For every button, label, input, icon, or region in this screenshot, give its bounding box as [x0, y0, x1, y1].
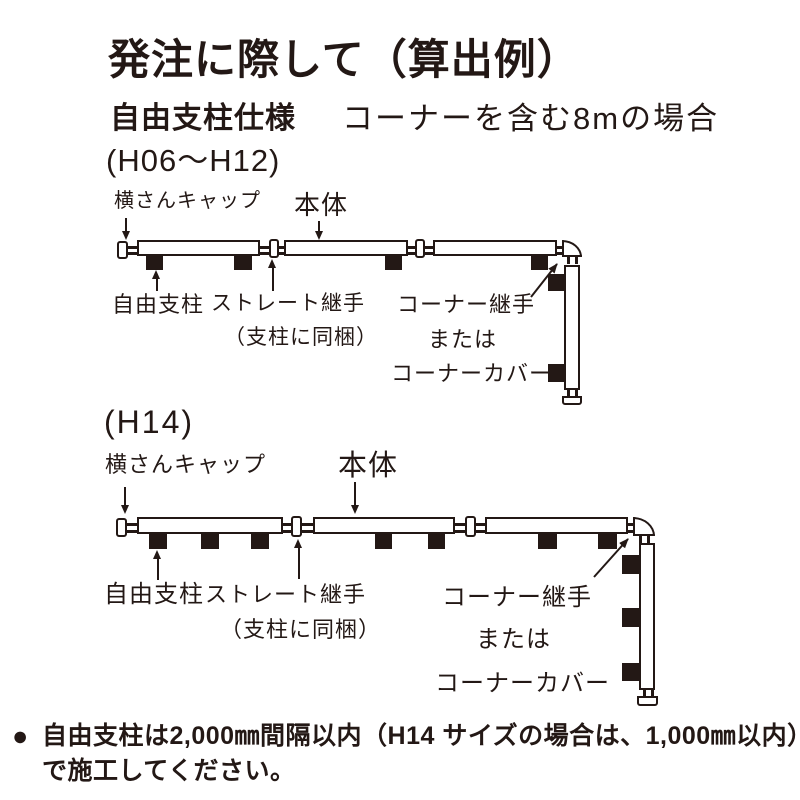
corner-label-line3: コーナーカバー: [391, 361, 552, 386]
joint-prong: [260, 252, 269, 255]
corner-label-line3: コーナーカバー: [435, 670, 610, 698]
bottom-rail-cap: [637, 696, 658, 706]
footnote-line2: で施工してください。: [42, 757, 296, 786]
free-post: [622, 555, 639, 574]
free-post: [234, 256, 252, 270]
free-post: [146, 256, 163, 270]
joint-prong: [408, 252, 415, 255]
arrow-to-cap-head: [122, 231, 130, 240]
cap-prong: [127, 530, 137, 533]
joint-prong: [425, 252, 433, 255]
corner-label-line2: または: [428, 327, 497, 352]
rail-end-cap: [116, 518, 127, 537]
vertical-rail: [564, 265, 580, 390]
spec-type-label: 自由支柱仕様: [110, 102, 296, 137]
footnote-line1: 自由支柱は2,000㎜間隔以内（H14 サイズの場合は、1,000㎜以内）: [42, 722, 800, 751]
joint-note-label: （支柱に同梱）: [224, 326, 378, 350]
joint-prong: [455, 523, 465, 526]
corner-joint: [633, 517, 655, 536]
joint-prong: [283, 523, 291, 526]
body-label: 本体: [294, 191, 348, 221]
free-post: [428, 534, 445, 549]
corner-joint: [562, 240, 582, 257]
fence-rail: [485, 517, 628, 534]
product-instruction-image: 発注に際して（算出例） 自由支柱仕様 コーナーを含む8mの場合 (H06〜H12…: [0, 0, 800, 800]
free-post: [385, 256, 402, 270]
straight-joint: [291, 516, 302, 537]
bottom-rail-cap: [562, 396, 582, 405]
corner-prong: [639, 536, 642, 543]
cap-prong: [127, 523, 137, 526]
free-post: [622, 663, 639, 681]
joint-prong: [476, 523, 485, 526]
arrow-to-joint: [272, 267, 274, 291]
straight-joint: [415, 239, 425, 258]
joint-note-label: （支柱に同梱）: [220, 617, 381, 642]
post-label: 自由支柱: [112, 292, 204, 317]
joint-label: ストレート継手: [205, 582, 366, 607]
post-label: 自由支柱: [104, 581, 204, 609]
size-range-label: (H06〜H12): [106, 143, 280, 179]
corner-prong: [647, 536, 650, 543]
free-post: [548, 364, 564, 382]
arrow-to-joint: [298, 547, 300, 579]
arrow-to-body: [354, 482, 356, 506]
vertical-rail: [639, 543, 655, 690]
joint-label: ストレート継手: [211, 292, 365, 316]
free-post: [251, 534, 269, 549]
size-range-label: (H14): [104, 404, 194, 441]
spec-case-label: コーナーを含む8mの場合: [342, 101, 719, 137]
joint-prong: [283, 530, 291, 533]
corner-prong: [567, 257, 570, 264]
cap-prong: [128, 252, 137, 255]
free-post: [375, 534, 392, 549]
joint-prong: [455, 530, 465, 533]
arrow-to-body-head: [351, 505, 359, 514]
corner-prong: [575, 257, 578, 264]
cap-prong: [128, 246, 137, 249]
fence-rail: [137, 240, 260, 256]
fence-rail: [313, 517, 455, 534]
arrow-to-body-head: [315, 231, 323, 240]
arrow-to-cap: [125, 218, 127, 232]
fence-rail: [284, 240, 408, 256]
page-title: 発注に際して（算出例）: [108, 36, 580, 84]
body-label: 本体: [338, 450, 398, 483]
joint-prong: [302, 530, 313, 533]
joint-prong: [476, 530, 485, 533]
straight-joint: [269, 239, 279, 258]
joint-prong: [302, 523, 313, 526]
fence-rail: [137, 517, 283, 534]
cap-label: 横さんキャップ: [105, 452, 266, 477]
free-post: [622, 608, 639, 627]
free-post: [149, 534, 167, 549]
arrow-to-post: [156, 278, 158, 291]
free-post: [201, 534, 219, 549]
corner-label-line2: または: [476, 626, 551, 654]
joint-prong: [260, 246, 269, 249]
fence-rail: [433, 240, 557, 256]
free-post: [538, 534, 557, 549]
free-post: [531, 256, 548, 270]
corner-label-line1: コーナー継手: [397, 292, 535, 317]
rail-end-cap: [117, 241, 128, 259]
corner-label-line1: コーナー継手: [442, 584, 592, 612]
cap-label: 横さんキャップ: [114, 190, 261, 213]
arrow-to-post: [157, 558, 159, 580]
straight-joint: [465, 516, 476, 537]
arrow-to-cap-head: [121, 505, 129, 514]
free-post: [548, 274, 564, 291]
joint-prong: [408, 246, 415, 249]
joint-prong: [425, 246, 433, 249]
footnote-bullet: ●: [12, 721, 29, 752]
arrow-to-cap: [124, 487, 126, 506]
free-post: [598, 534, 617, 549]
